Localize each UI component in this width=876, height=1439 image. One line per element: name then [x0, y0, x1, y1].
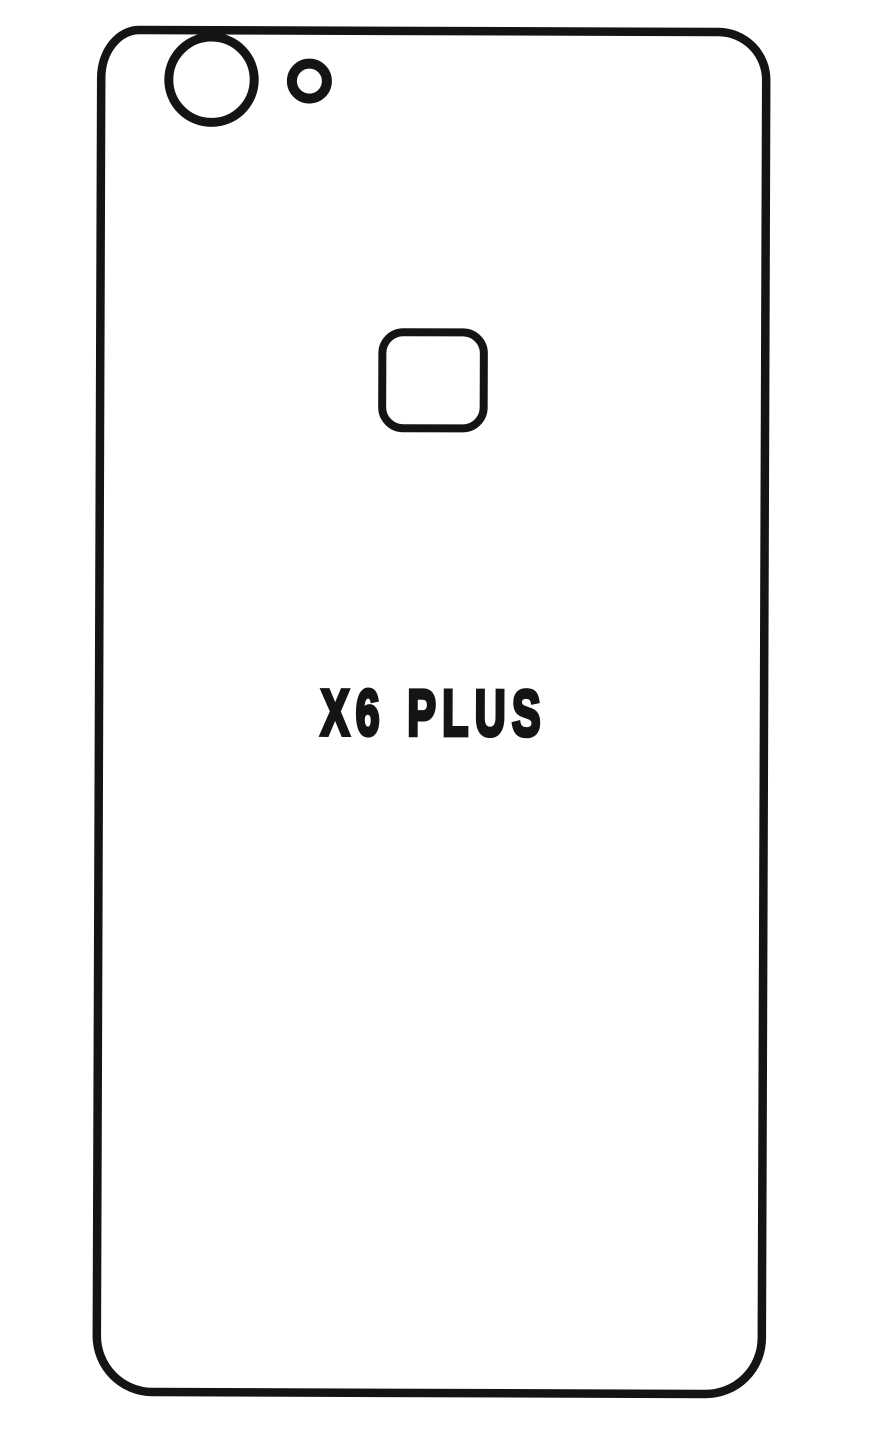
svg-text:X6 PLUS: X6 PLUS [321, 676, 547, 750]
